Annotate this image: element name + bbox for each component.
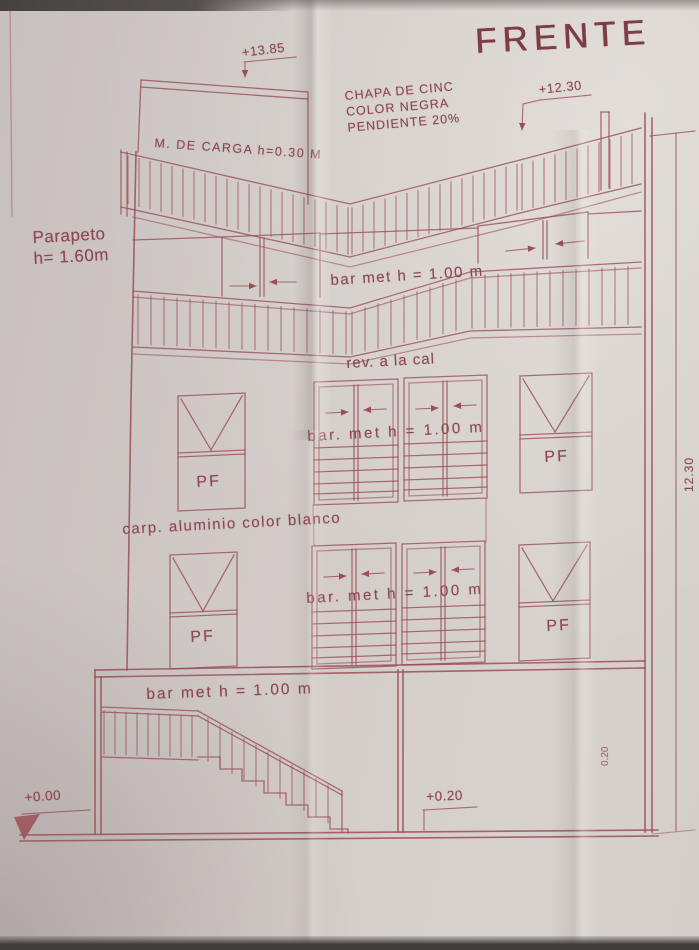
photo-edge-bottom (0, 936, 699, 950)
window-pf-right-floor1 (519, 542, 590, 661)
sliding-arrow-icons (416, 405, 476, 409)
window-pf-left-floor1 (170, 552, 237, 669)
window-sliding-center-right-floor2 (404, 375, 487, 501)
elevation-linework (0, 0, 699, 950)
photo-edge-top (0, 0, 699, 11)
window-pf-left-floor2 (178, 393, 245, 511)
window-sliding-center-left-floor2 (314, 379, 398, 505)
floor1-windows (170, 541, 590, 669)
balcony-railing-balusters (138, 267, 628, 354)
balcony-railing-band (133, 262, 641, 364)
building-outline (20, 113, 658, 841)
floor2-windows (178, 373, 592, 545)
stair-steps (198, 757, 348, 833)
height-dimension-line (650, 131, 695, 834)
window-pf-right-floor2 (520, 373, 592, 493)
sliding-arrow-icons (324, 573, 384, 577)
roof-railing-balusters (128, 134, 632, 254)
sliding-arrow-icons (414, 569, 474, 573)
level-marker-triangle (14, 814, 40, 840)
top-floor-windows (133, 211, 641, 297)
elevation-drawing-photo: FRENTE +13.85 CHAPA DE CINC COLOR NEGRA … (0, 0, 699, 950)
paper-edge-line (10, 0, 12, 216)
window-sliding-center-left-floor1 (312, 543, 396, 669)
staircase (102, 707, 348, 833)
window-sliding-center-right-floor1 (402, 541, 485, 665)
sliding-arrow-icons (230, 241, 584, 286)
machine-room-bulkhead (138, 80, 308, 204)
sliding-arrow-icons (326, 409, 386, 413)
